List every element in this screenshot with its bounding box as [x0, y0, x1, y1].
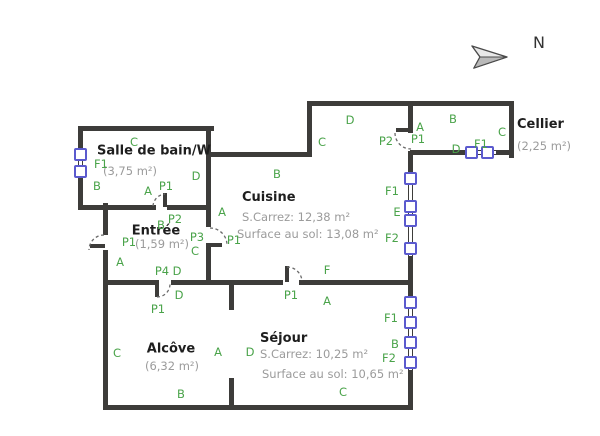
wall-label-d: D	[175, 288, 184, 302]
wall-label-d: D	[173, 264, 182, 278]
wall-label-d: D	[452, 142, 461, 156]
wall-label-a: A	[144, 184, 152, 198]
wall-label-d: D	[192, 169, 201, 183]
room-area-alcove: (6,32 m²)	[145, 359, 199, 373]
wall-label-c: C	[498, 125, 506, 139]
wall-label-p1: P1	[122, 235, 136, 249]
wall-label-d: D	[346, 113, 355, 127]
door-arc	[395, 133, 411, 149]
wall-label-c: C	[113, 346, 121, 360]
wall-label-c: C	[318, 135, 326, 149]
wall-label-p1: P1	[159, 179, 173, 193]
wall-label-f1: F1	[385, 184, 399, 198]
wall-label-c: C	[339, 385, 347, 399]
north-arrow-icon	[472, 46, 507, 68]
north-label: N	[533, 33, 545, 52]
wall-label-a: A	[214, 345, 222, 359]
room-floor-cuisine: Surface au sol: 13,08 m²	[237, 227, 379, 241]
room-carrez-cuisine: S.Carrez: 12,38 m²	[242, 210, 350, 224]
wall-label-p1: P1	[411, 132, 425, 146]
door-arc	[153, 194, 165, 206]
wall-label-f1: F1	[474, 137, 488, 151]
wall-label-a: A	[116, 255, 124, 269]
room-area-entree: (1,59 m²)	[135, 237, 189, 251]
wall-label-b: B	[157, 218, 165, 232]
room-name-cuisine: Cuisine	[242, 190, 296, 205]
wall-label-p1: P1	[151, 302, 165, 316]
wall-label-c: C	[130, 135, 138, 149]
wall-label-e: E	[393, 205, 400, 219]
room-floor-sejour: Surface au sol: 10,65 m²	[262, 367, 404, 381]
wall-label-c: C	[191, 244, 199, 258]
wall-label-p4: P4	[155, 264, 169, 278]
room-area-bathroom: (3,75 m²)	[103, 164, 157, 178]
wall-label-b: B	[93, 179, 101, 193]
wall-label-b: B	[391, 337, 399, 351]
room-name-sejour: Séjour	[260, 331, 307, 346]
wall-label-d: D	[246, 345, 255, 359]
wall-label-f2: F2	[385, 231, 399, 245]
door-arc	[89, 235, 104, 250]
wall-label-b: B	[273, 167, 281, 181]
wall-label-p3: P3	[190, 230, 204, 244]
door-arc	[287, 267, 302, 281]
wall-label-b: B	[449, 112, 457, 126]
wall-label-p2: P2	[168, 212, 182, 226]
door-arc	[157, 284, 170, 297]
wall-label-f1: F1	[94, 157, 108, 171]
wall-label-a: A	[323, 294, 331, 308]
wall-label-f1: F1	[384, 311, 398, 325]
room-name-cellier: Cellier	[517, 117, 564, 132]
room-carrez-sejour: S.Carrez: 10,25 m²	[260, 347, 368, 361]
room-area-cellier: (2,25 m²)	[517, 139, 571, 153]
wall-label-f2: F2	[382, 351, 396, 365]
floorplan: N Salle de bain/W (3,75 m²) Entrée (1,59…	[0, 0, 600, 436]
room-name-bathroom: Salle de bain/W	[97, 144, 211, 159]
wall-label-p2: P2	[379, 134, 393, 148]
wall-label-p1: P1	[227, 233, 241, 247]
wall-label-a: A	[218, 205, 226, 219]
wall-label-b: B	[177, 387, 185, 401]
wall-label-f: F	[324, 263, 331, 277]
room-name-alcove: Alcôve	[147, 342, 195, 357]
door-arc	[210, 228, 227, 245]
wall-label-p1: P1	[284, 288, 298, 302]
